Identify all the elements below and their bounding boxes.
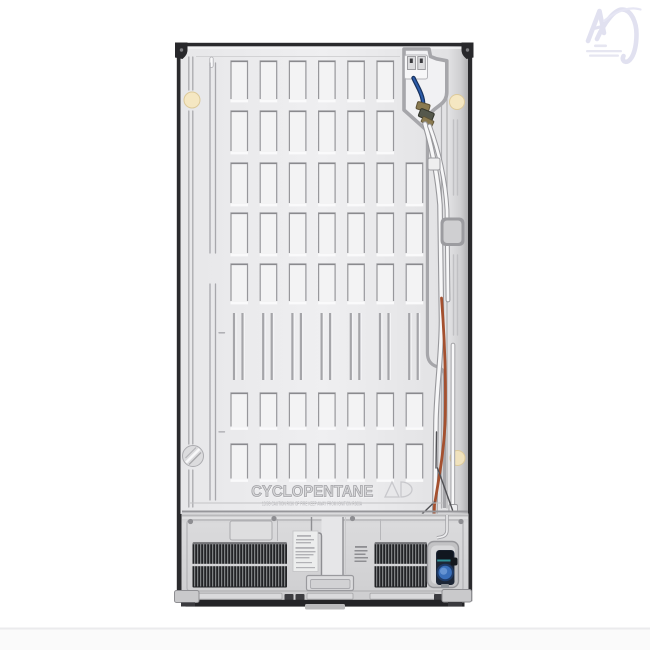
svg-text:13.5G CAUTION RISK OF FIRE KEE: 13.5G CAUTION RISK OF FIRE KEEP AWAY FRO… bbox=[262, 502, 362, 508]
svg-text:CYCLOPENTANE: CYCLOPENTANE bbox=[251, 484, 373, 501]
